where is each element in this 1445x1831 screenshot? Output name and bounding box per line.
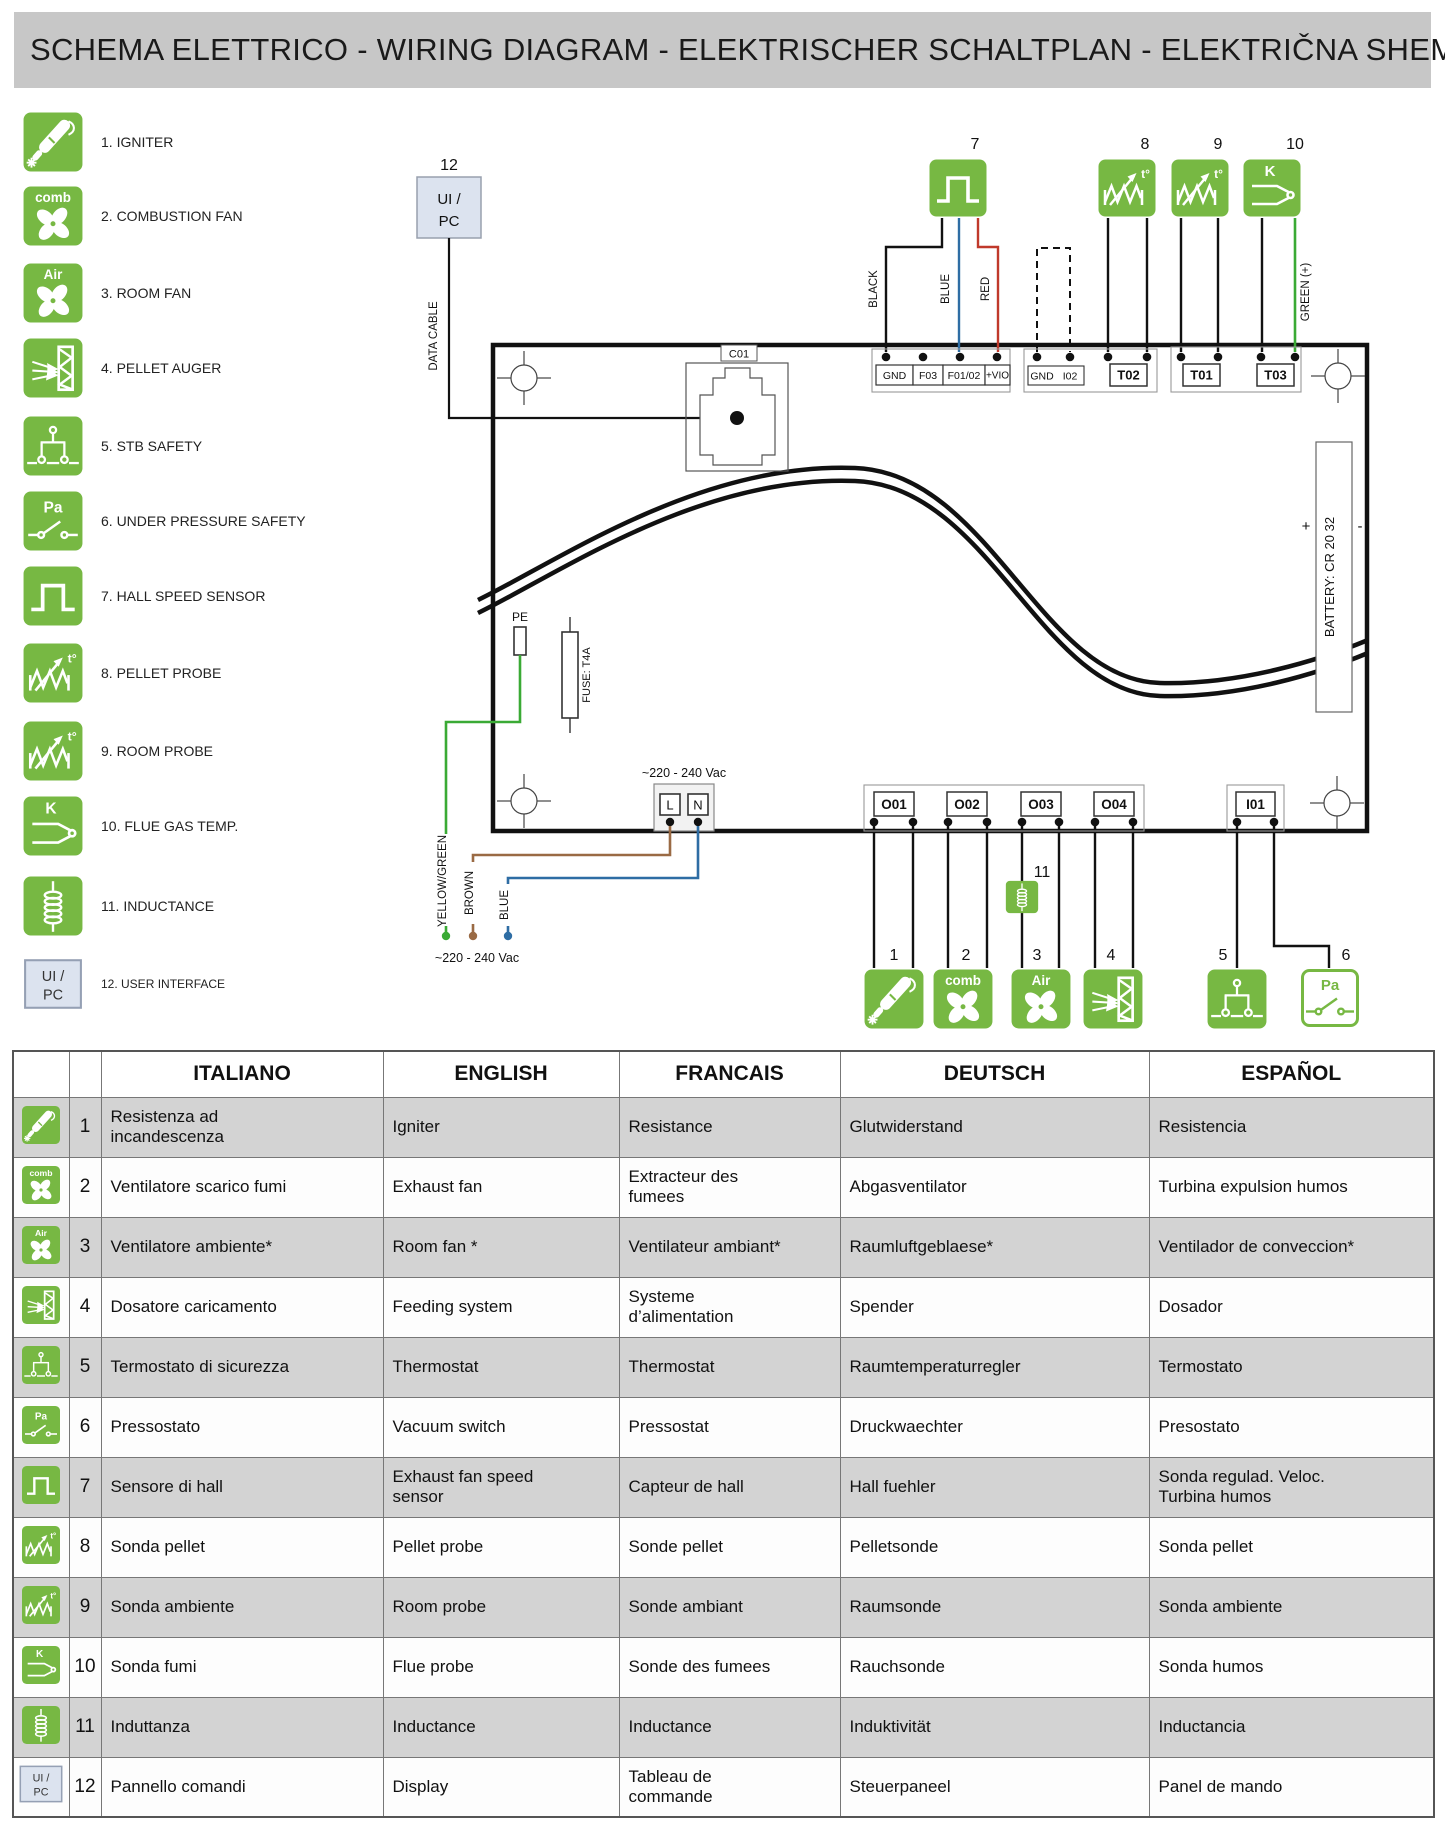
cell-it: Sonda fumi (101, 1637, 383, 1697)
cell-fr: Thermostat (619, 1337, 840, 1397)
row-icon-cell: t° (13, 1517, 69, 1577)
terminal-+VIO: +VIO (985, 365, 1010, 385)
legend-item-label: 3. ROOM FAN (101, 285, 191, 301)
cell-it: Sonda ambiente (101, 1577, 383, 1637)
svg-text:Pa: Pa (1321, 977, 1340, 994)
svg-text:I02: I02 (1063, 371, 1078, 383)
cell-it: Pannello comandi (101, 1757, 383, 1817)
table-row-5: 5Termostato di sicurezzaThermostatThermo… (13, 1337, 1434, 1397)
row-icon-cell: UI /PC (13, 1757, 69, 1817)
cell-it: Termostato di sicurezza (101, 1337, 383, 1397)
cell-fr: Systeme d’alimentation (619, 1277, 840, 1337)
row-number: 11 (69, 1697, 101, 1757)
cell-it: Ventilatore scarico fumi (101, 1157, 383, 1217)
svg-text:GND: GND (1030, 371, 1054, 383)
auger-icon (22, 337, 84, 399)
optional-sensor-dashed (1037, 248, 1070, 352)
legend-item-label: 5. STB SAFETY (101, 438, 202, 454)
cell-fr: Sonde pellet (619, 1517, 840, 1577)
probe-wires (1108, 218, 1262, 352)
cell-es: Termostato (1149, 1337, 1434, 1397)
cell-fr: Sonde ambiant (619, 1577, 840, 1637)
legend-item-label: 1. IGNITER (101, 134, 173, 150)
legend-item-5: 5. STB SAFETY (22, 415, 202, 477)
cell-es: Ventilador de conveccion* (1149, 1217, 1434, 1277)
cell-fr: Inductance (619, 1697, 840, 1757)
svg-text:BLACK: BLACK (868, 270, 880, 308)
fan_air-icon: Air (21, 1225, 61, 1265)
cell-de: Rauchsonde (840, 1637, 1149, 1697)
cell-it: Dosatore caricamento (101, 1277, 383, 1337)
cell-de: Abgasventilator (840, 1157, 1149, 1217)
svg-text:K: K (45, 801, 57, 818)
mains-terminal: ~220 - 240 Vac L N (642, 766, 726, 831)
svg-text:O01: O01 (881, 797, 907, 812)
probe-icon: t° (22, 720, 84, 782)
svg-text:PC: PC (43, 988, 63, 1004)
cell-it: Ventilatore ambiente* (101, 1217, 383, 1277)
terminal-F03: F03 (913, 365, 943, 385)
svg-text:PE: PE (512, 610, 528, 624)
cell-fr: Capteur de hall (619, 1457, 840, 1517)
cell-en: Exhaust fan speed sensor (383, 1457, 619, 1517)
cell-es: Inductancia (1149, 1697, 1434, 1757)
table-row-7: 7Sensore di hallExhaust fan speed sensor… (13, 1457, 1434, 1517)
row-icon-cell (13, 1337, 69, 1397)
row-number: 10 (69, 1637, 101, 1697)
svg-text:N: N (693, 798, 702, 813)
fan_comb-icon: comb (22, 185, 84, 247)
cell-de: Druckwaechter (840, 1397, 1149, 1457)
terminal-O03: O03 (1021, 792, 1061, 816)
svg-text:YELLOW/GREEN: YELLOW/GREEN (437, 835, 449, 927)
wiring-diagram-page: SCHEMA ELETTRICO - WIRING DIAGRAM - ELEK… (0, 0, 1445, 1831)
legend-item-label: 6. UNDER PRESSURE SAFETY (101, 513, 306, 529)
cell-es: Sonda pellet (1149, 1517, 1434, 1577)
svg-text:comb: comb (945, 973, 981, 988)
svg-text:3: 3 (1033, 947, 1042, 964)
probe-icon: t° (22, 642, 84, 704)
device-8: 8t° (1099, 136, 1156, 217)
svg-text:comb: comb (30, 1168, 53, 1178)
row-icon-cell: t° (13, 1577, 69, 1637)
legend-item-4: 4. PELLET AUGER (22, 337, 221, 399)
cell-de: Raumtemperaturregler (840, 1337, 1149, 1397)
legend-item-label: 9. ROOM PROBE (101, 743, 213, 759)
svg-text:10: 10 (1286, 136, 1304, 153)
legend-item-10: K10. FLUE GAS TEMP. (22, 795, 238, 857)
inductance-icon (21, 1705, 61, 1745)
probe-icon: t° (21, 1525, 61, 1565)
cell-fr: Ventilateur ambiant* (619, 1217, 840, 1277)
svg-text:T02: T02 (1117, 368, 1139, 383)
legend-item-label: 2. COMBUSTION FAN (101, 208, 243, 224)
terminal-F01/02: F01/02 (943, 365, 985, 385)
svg-text:Air: Air (44, 267, 63, 282)
legend-item-2: comb 2. COMBUSTION FAN (22, 185, 243, 247)
row-number: 6 (69, 1397, 101, 1457)
cell-fr: Tableau de commande (619, 1757, 840, 1817)
cell-fr: Extracteur des fumees (619, 1157, 840, 1217)
table-row-4: 4Dosatore caricamentoFeeding systemSyste… (13, 1277, 1434, 1337)
cell-de: Spender (840, 1277, 1149, 1337)
svg-text:5: 5 (1219, 947, 1228, 964)
svg-text:8: 8 (1141, 136, 1150, 153)
legend-item-12: UI /PC12. USER INTERFACE (22, 953, 225, 1015)
row-icon-cell (13, 1457, 69, 1517)
cell-es: Turbina expulsion humos (1149, 1157, 1434, 1217)
fan_air-icon: Air (22, 262, 84, 324)
svg-text:K: K (1265, 163, 1276, 180)
wire-brown: BROWN (464, 826, 670, 940)
auger-icon (1084, 970, 1143, 1029)
svg-text:~220 - 240 Vac: ~220 - 240 Vac (642, 766, 726, 780)
table-row-2: comb 2Ventilatore scarico fumiExhaust fa… (13, 1157, 1434, 1217)
legend-item-label: 8. PELLET PROBE (101, 665, 221, 681)
svg-text:C01: C01 (729, 349, 749, 361)
svg-text:O03: O03 (1028, 797, 1054, 812)
stb-icon (21, 1345, 61, 1385)
cell-es: Panel de mando (1149, 1757, 1434, 1817)
svg-text:6: 6 (1342, 947, 1351, 964)
legend-item-11: 11. INDUCTANCE (22, 875, 214, 937)
device-2: 2comb (934, 947, 993, 1028)
svg-text:t°: t° (1214, 167, 1223, 181)
cell-de: Induktivität (840, 1697, 1149, 1757)
header-num-cell (69, 1051, 101, 1097)
header-DEUTSCH: DEUTSCH (840, 1051, 1149, 1097)
svg-text:T03: T03 (1264, 368, 1286, 383)
svg-text:+VIO: +VIO (986, 371, 1009, 382)
device-3: 3Air (1012, 947, 1071, 1028)
table-row-9: t°9Sonda ambienteRoom probeSonde ambiant… (13, 1577, 1434, 1637)
legend-item-label: 10. FLUE GAS TEMP. (101, 818, 238, 834)
svg-text:BLUE: BLUE (499, 890, 511, 920)
terminal-T01: T01 (1183, 364, 1220, 386)
row-number: 1 (69, 1097, 101, 1157)
table-row-3: Air 3Ventilatore ambiente*Room fan *Vent… (13, 1217, 1434, 1277)
legend-item-label: 12. USER INTERFACE (101, 977, 225, 991)
hall-sensor-wires: BLACKBLUERED (868, 218, 998, 352)
cell-en: Feeding system (383, 1277, 619, 1337)
svg-text:DATA CABLE: DATA CABLE (428, 301, 440, 371)
translation-table: ITALIANOENGLISHFRANCAISDEUTSCHESPAÑOL 1R… (12, 1050, 1435, 1818)
svg-text:t°: t° (68, 730, 77, 744)
ui-icon: UI /PC (18, 1761, 64, 1807)
svg-text:UI /: UI / (42, 969, 65, 985)
terminal-T03: T03 (1257, 364, 1294, 386)
inductance-icon (22, 875, 84, 937)
svg-text:~220 - 240 Vac: ~220 - 240 Vac (435, 951, 519, 965)
terminal-T02: T02 (1110, 364, 1147, 386)
cell-en: Inductance (383, 1697, 619, 1757)
table-row-8: t°8Sonda pelletPellet probeSonde pelletP… (13, 1517, 1434, 1577)
svg-text:BROWN: BROWN (464, 871, 476, 915)
svg-text:t°: t° (51, 1531, 57, 1540)
row-icon-cell: K (13, 1637, 69, 1697)
user-interface-box: 12 UI /PC (417, 157, 481, 238)
cell-fr: Sonde des fumees (619, 1637, 840, 1697)
wire-blue-mains: BLUE (499, 826, 698, 940)
igniter-icon (21, 1105, 61, 1145)
wire-green-plus: GREEN (+) (1295, 218, 1312, 352)
svg-text:2: 2 (962, 947, 971, 964)
svg-text:I01: I01 (1246, 797, 1265, 812)
device-7: 7 (930, 136, 987, 217)
svg-text:GREEN (+): GREEN (+) (1300, 263, 1312, 322)
table-row-11: 11InduttanzaInductanceInductanceInduktiv… (13, 1697, 1434, 1757)
terminal-O02: O02 (947, 792, 987, 816)
svg-text:4: 4 (1107, 947, 1116, 964)
legend-item-label: 11. INDUCTANCE (101, 898, 214, 914)
svg-text:GND: GND (883, 370, 907, 382)
legend-item-label: 7. HALL SPEED SENSOR (101, 588, 265, 604)
legend-item-1: 1. IGNITER (22, 111, 173, 173)
pa-icon: Pa (22, 490, 84, 552)
header-ITALIANO: ITALIANO (101, 1051, 383, 1097)
svg-text:RED: RED (980, 277, 992, 301)
svg-text:FUSE: T4A: FUSE: T4A (581, 647, 593, 703)
device-10: 10K (1244, 136, 1305, 217)
cell-en: Room probe (383, 1577, 619, 1637)
legend-panel: 1. IGNITERcomb 2. COMBUSTION FANAir 3. R… (0, 0, 400, 1048)
svg-text:Pa: Pa (35, 1411, 48, 1422)
table-row-10: K10Sonda fumiFlue probeSonde des fumeesR… (13, 1637, 1434, 1697)
svg-text:F03: F03 (919, 370, 937, 382)
legend-item-9: t°9. ROOM PROBE (22, 720, 213, 782)
terminal-O04: O04 (1094, 792, 1134, 816)
ui-icon: UI /PC (22, 953, 84, 1015)
svg-text:PC: PC (439, 213, 460, 230)
row-icon-cell: Air (13, 1217, 69, 1277)
auger-icon (21, 1285, 61, 1325)
svg-text:1: 1 (890, 947, 899, 964)
svg-text:UI /: UI / (33, 1773, 50, 1785)
probe-icon: t° (1172, 160, 1229, 217)
cell-it: Pressostato (101, 1397, 383, 1457)
svg-text:-: - (1358, 518, 1363, 535)
hall-icon (930, 160, 987, 217)
svg-text:L: L (666, 798, 673, 813)
table-row-1: 1Resistenza ad incandescenzaIgniterResis… (13, 1097, 1434, 1157)
fan_comb-icon: comb (934, 970, 993, 1029)
svg-text:Pa: Pa (44, 500, 63, 517)
cell-de: Steuerpaneel (840, 1757, 1149, 1817)
svg-text:O02: O02 (954, 797, 980, 812)
hall-icon (22, 565, 84, 627)
svg-text:K: K (36, 1649, 44, 1660)
cell-it: Induttanza (101, 1697, 383, 1757)
cell-es: Dosador (1149, 1277, 1434, 1337)
svg-text:9: 9 (1214, 136, 1223, 153)
cell-en: Vacuum switch (383, 1397, 619, 1457)
svg-text:BATTERY: CR 20 32: BATTERY: CR 20 32 (1322, 517, 1337, 637)
pe-terminal: PE (512, 610, 528, 655)
table-row-12: UI /PC12Pannello comandiDisplayTableau d… (13, 1757, 1434, 1817)
cell-en: Display (383, 1757, 619, 1817)
cell-de: Pelletsonde (840, 1517, 1149, 1577)
k-icon: K (22, 795, 84, 857)
row-number: 7 (69, 1457, 101, 1517)
cell-it: Sonda pellet (101, 1517, 383, 1577)
header-ENGLISH: ENGLISH (383, 1051, 619, 1097)
cell-en: Igniter (383, 1097, 619, 1157)
header-icon-cell (13, 1051, 69, 1097)
row-icon-cell: comb (13, 1157, 69, 1217)
terminal-GND: GND (876, 365, 913, 385)
cell-it: Sensore di hall (101, 1457, 383, 1517)
table-row-6: Pa 6PressostatoVacuum switchPressostatDr… (13, 1397, 1434, 1457)
legend-item-7: 7. HALL SPEED SENSOR (22, 565, 265, 627)
igniter-icon (865, 970, 924, 1029)
stb-icon (1208, 970, 1267, 1029)
terminal-O01: O01 (874, 792, 914, 816)
legend-item-label: 4. PELLET AUGER (101, 360, 221, 376)
igniter-icon (22, 111, 84, 173)
header-ESPAÑOL: ESPAÑOL (1149, 1051, 1434, 1097)
svg-text:+: + (1302, 518, 1311, 535)
row-number: 3 (69, 1217, 101, 1277)
cell-fr: Pressostat (619, 1397, 840, 1457)
svg-text:12: 12 (440, 157, 458, 174)
header-FRANCAIS: FRANCAIS (619, 1051, 840, 1097)
probe-icon: t° (1099, 160, 1156, 217)
device-9: 9t° (1172, 136, 1229, 217)
cell-en: Exhaust fan (383, 1157, 619, 1217)
stb-icon (22, 415, 84, 477)
cell-de: Hall fuehler (840, 1457, 1149, 1517)
output-wires (874, 826, 1329, 968)
svg-text:T01: T01 (1190, 368, 1212, 383)
inductance-icon (1006, 881, 1038, 913)
row-icon-cell (13, 1277, 69, 1337)
k-icon: K (1244, 160, 1301, 217)
legend-item-3: Air 3. ROOM FAN (22, 262, 191, 324)
row-icon-cell (13, 1097, 69, 1157)
legend-item-8: t°8. PELLET PROBE (22, 642, 221, 704)
svg-text:11: 11 (1034, 864, 1051, 881)
cell-fr: Resistance (619, 1097, 840, 1157)
row-number: 4 (69, 1277, 101, 1337)
row-number: 9 (69, 1577, 101, 1637)
fan_comb-icon: comb (21, 1165, 61, 1205)
probe-icon: t° (21, 1585, 61, 1625)
svg-text:O04: O04 (1101, 797, 1127, 812)
svg-text:Air: Air (1032, 973, 1051, 988)
pa_out-icon: Pa (1303, 971, 1358, 1026)
cell-en: Flue probe (383, 1637, 619, 1697)
cell-de: Glutwiderstand (840, 1097, 1149, 1157)
svg-text:comb: comb (35, 190, 71, 205)
row-number: 2 (69, 1157, 101, 1217)
hall-icon (21, 1465, 61, 1505)
row-icon-cell (13, 1697, 69, 1757)
cell-en: Thermostat (383, 1337, 619, 1397)
svg-text:t°: t° (51, 1591, 57, 1600)
pa-icon: Pa (21, 1405, 61, 1445)
row-number: 5 (69, 1337, 101, 1397)
svg-text:UI /: UI / (437, 191, 461, 208)
row-number: 8 (69, 1517, 101, 1577)
cell-es: Presostato (1149, 1397, 1434, 1457)
row-icon-cell: Pa (13, 1397, 69, 1457)
svg-text:PC: PC (34, 1787, 49, 1799)
svg-text:BLUE: BLUE (940, 274, 952, 304)
svg-text:t°: t° (68, 652, 77, 666)
cell-es: Sonda regulad. Veloc. Turbina humos (1149, 1457, 1434, 1517)
cell-de: Raumluftgeblaese* (840, 1217, 1149, 1277)
device-11: 11 (1006, 864, 1051, 913)
cell-de: Raumsonde (840, 1577, 1149, 1637)
svg-text:7: 7 (971, 136, 980, 153)
cell-es: Sonda humos (1149, 1637, 1434, 1697)
row-number: 12 (69, 1757, 101, 1817)
k-icon: K (21, 1645, 61, 1685)
cell-es: Resistencia (1149, 1097, 1434, 1157)
cell-it: Resistenza ad incandescenza (101, 1097, 383, 1157)
svg-text:F01/02: F01/02 (948, 370, 981, 382)
cell-en: Room fan * (383, 1217, 619, 1277)
fan_air-icon: Air (1012, 970, 1071, 1029)
table-header-row: ITALIANOENGLISHFRANCAISDEUTSCHESPAÑOL (13, 1051, 1434, 1097)
svg-text:Air: Air (35, 1228, 48, 1238)
legend-item-6: Pa 6. UNDER PRESSURE SAFETY (22, 490, 306, 552)
cell-en: Pellet probe (383, 1517, 619, 1577)
terminal-I01: I01 (1236, 792, 1275, 816)
cell-es: Sonda ambiente (1149, 1577, 1434, 1637)
svg-text:t°: t° (1141, 167, 1150, 181)
